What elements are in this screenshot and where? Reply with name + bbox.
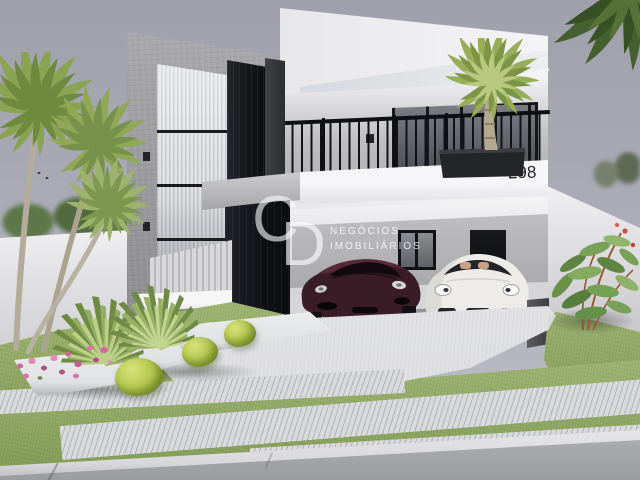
glass-mullion <box>157 238 227 241</box>
logo-line1: NEGÓCIOS <box>330 226 400 237</box>
red-berry <box>631 243 635 247</box>
background-trees-right <box>588 140 640 202</box>
red-berry <box>622 228 627 233</box>
logo-letter-d: D <box>281 214 326 276</box>
pink-flowers <box>80 338 120 372</box>
air-intake <box>317 302 337 310</box>
cd-logo: C D NEGÓCIOS IMOBILIÁRIOS <box>250 190 430 282</box>
right-bush <box>533 215 640 333</box>
air-intake <box>394 297 410 304</box>
headlight-icon <box>503 285 519 296</box>
air-intake <box>352 307 378 313</box>
red-berry <box>615 223 619 227</box>
logo-line2: IMOBILIÁRIOS <box>330 241 422 252</box>
architectural-render: 298 <box>0 0 640 480</box>
bush-leaves <box>549 233 640 321</box>
railing-post <box>393 115 396 168</box>
railing-post <box>322 118 325 172</box>
balcony-palm-tree <box>413 38 565 178</box>
headlight-icon <box>435 285 451 296</box>
glass-mullion <box>157 130 227 133</box>
